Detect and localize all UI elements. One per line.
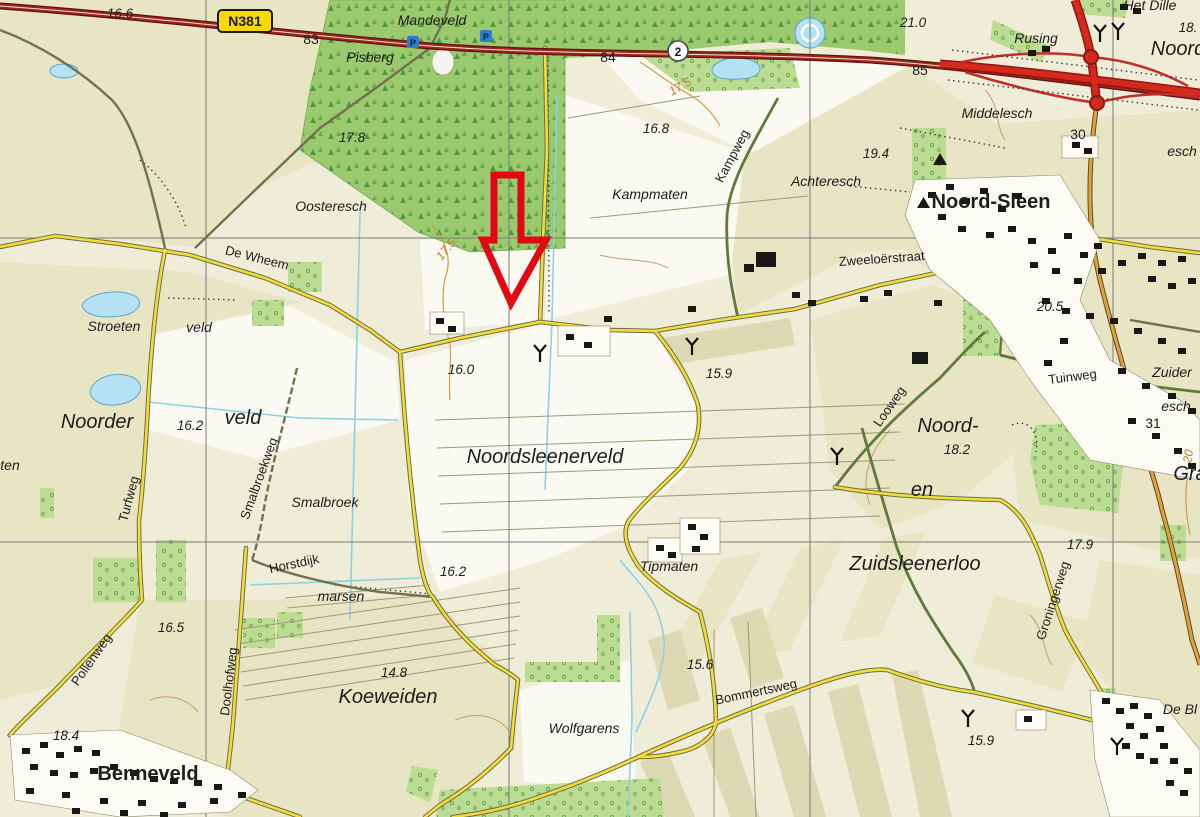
map-label: 31 <box>1145 415 1161 431</box>
field-layer <box>0 0 1200 817</box>
map-label: 85 <box>912 62 928 78</box>
building <box>1160 743 1168 749</box>
building <box>860 296 868 302</box>
map-label: Noord-Sleen <box>932 191 1051 213</box>
building <box>1060 338 1068 344</box>
map-label: en <box>911 479 933 501</box>
map-label: 15.6 <box>687 657 714 672</box>
map-label: 21.0 <box>899 15 927 30</box>
map-label: Rusing <box>1014 30 1058 46</box>
building <box>1008 226 1016 232</box>
building <box>1136 753 1144 759</box>
building <box>1170 758 1178 764</box>
building <box>92 750 100 756</box>
map-label: 16.5 <box>158 620 185 635</box>
building <box>1024 716 1032 722</box>
building <box>1156 726 1164 732</box>
building <box>1086 313 1094 319</box>
map-label: 20.5 <box>1036 299 1064 314</box>
map-label: ten <box>0 457 20 473</box>
map-canvas: N381 2 P P 16.683Mandeveld848517.521.0Ru… <box>0 0 1200 817</box>
building <box>1184 768 1192 774</box>
building <box>1158 338 1166 344</box>
building <box>1134 328 1142 334</box>
building <box>178 802 186 808</box>
svg-text:P: P <box>483 32 489 42</box>
building <box>448 326 456 332</box>
building <box>210 798 218 804</box>
building <box>1048 248 1056 254</box>
map-label: Wolfgarens <box>549 720 620 736</box>
building <box>50 770 58 776</box>
building <box>1130 703 1138 709</box>
map-label: veld <box>186 319 213 335</box>
map-label: 16.2 <box>440 564 467 579</box>
building <box>100 798 108 804</box>
building <box>1098 268 1106 274</box>
map-label: veld <box>225 407 263 429</box>
building <box>1128 418 1136 424</box>
building <box>1110 318 1118 324</box>
building <box>62 792 70 798</box>
building <box>436 318 444 324</box>
building <box>30 764 38 770</box>
building <box>26 788 34 794</box>
map-label: 30 <box>1070 126 1086 142</box>
building <box>1140 733 1148 739</box>
map-label: 83 <box>303 31 319 47</box>
building <box>1052 268 1060 274</box>
building <box>1138 253 1146 259</box>
map-label: Noord- <box>917 415 978 437</box>
pond <box>50 64 78 78</box>
building <box>584 342 592 348</box>
map-label: esch <box>1161 398 1191 414</box>
map-label: De Bl <box>1163 701 1198 717</box>
building <box>1080 252 1088 258</box>
building <box>912 352 928 364</box>
building <box>986 232 994 238</box>
parking-icon: P <box>480 30 492 42</box>
parking-icon: P <box>407 36 419 48</box>
building <box>160 812 168 817</box>
building <box>884 290 892 296</box>
building <box>1178 256 1186 262</box>
map-label: 16.0 <box>448 362 475 377</box>
building <box>1152 433 1160 439</box>
map-label: Zuider <box>1151 364 1193 380</box>
building <box>1122 743 1130 749</box>
map-label: 15.9 <box>968 733 995 748</box>
map-label: Koeweiden <box>339 686 438 708</box>
building <box>692 546 700 552</box>
building <box>958 226 966 232</box>
map-label: Tipmaten <box>640 558 698 574</box>
building <box>938 214 946 220</box>
building <box>120 810 128 816</box>
building <box>1084 148 1092 154</box>
map-label: 18.2 <box>944 442 971 457</box>
building <box>1126 723 1134 729</box>
map-label: 15.9 <box>706 366 733 381</box>
map-label: esch <box>1167 143 1197 159</box>
building <box>1072 142 1080 148</box>
n381-shield-label: N381 <box>228 13 262 29</box>
building <box>688 306 696 312</box>
building <box>1150 758 1158 764</box>
map-label: Oosteresch <box>295 198 367 214</box>
building <box>688 524 696 530</box>
building <box>56 752 64 758</box>
building <box>214 784 222 790</box>
building <box>238 792 246 798</box>
building <box>1042 46 1050 52</box>
building <box>138 800 146 806</box>
map-label: Kampmaten <box>612 186 688 202</box>
building <box>1168 283 1176 289</box>
map-label: Smalbroek <box>292 494 360 510</box>
building <box>1178 348 1186 354</box>
map-label: 19.4 <box>863 146 889 161</box>
svg-text:P: P <box>410 38 416 48</box>
map-label: 16.2 <box>177 418 204 433</box>
map-label: marsen <box>318 588 365 604</box>
map-label: Het Dille <box>1124 0 1177 13</box>
building <box>934 300 942 306</box>
building <box>1030 262 1038 268</box>
map-label: 16.6 <box>107 6 134 21</box>
building <box>1118 260 1126 266</box>
map-label: Pisberg <box>346 49 394 65</box>
building <box>756 252 776 267</box>
building <box>1166 780 1174 786</box>
building <box>792 292 800 298</box>
map-label: 84 <box>600 49 616 65</box>
building <box>1158 260 1166 266</box>
map-label: 18. <box>1179 20 1198 35</box>
building <box>40 742 48 748</box>
building <box>1116 708 1124 714</box>
map-label: Zuidsleenerloo <box>848 553 980 575</box>
building <box>1094 243 1102 249</box>
building <box>1102 698 1110 704</box>
building <box>1064 233 1072 239</box>
route-2-label: 2 <box>675 45 682 59</box>
building <box>604 316 612 322</box>
building <box>1028 50 1036 56</box>
building <box>566 334 574 340</box>
map-label: Achteresch <box>790 173 861 189</box>
building <box>656 545 664 551</box>
building <box>700 534 708 540</box>
building <box>1142 383 1150 389</box>
building <box>1118 368 1126 374</box>
map-label: Mandeveld <box>398 12 468 28</box>
building <box>1144 713 1152 719</box>
map-label: Noordsleenerveld <box>467 446 625 468</box>
building <box>70 772 78 778</box>
building <box>1188 278 1196 284</box>
map-label: 20 <box>1180 448 1196 465</box>
map-label: Benneveld <box>97 763 198 785</box>
building <box>1044 360 1052 366</box>
building <box>72 808 80 814</box>
map-label: 16.8 <box>643 121 670 136</box>
building <box>946 184 954 190</box>
building <box>1148 276 1156 282</box>
building <box>1074 278 1082 284</box>
map-label: 17.9 <box>1067 537 1094 552</box>
map-label: 14.8 <box>381 665 408 680</box>
building <box>1180 790 1188 796</box>
building <box>1028 238 1036 244</box>
lake-small <box>712 58 760 79</box>
map-label: 18.4 <box>53 728 79 743</box>
map-label: Stroeten <box>88 318 141 334</box>
building <box>744 264 754 272</box>
map-label: 17.8 <box>339 130 366 145</box>
building <box>74 746 82 752</box>
map-label: Noorder <box>61 411 135 433</box>
building <box>22 748 30 754</box>
map-label: Noord <box>1151 38 1200 60</box>
map-label: Middelesch <box>962 105 1033 121</box>
topographic-map: N381 2 P P 16.683Mandeveld848517.521.0Ru… <box>0 0 1200 817</box>
building <box>808 300 816 306</box>
building <box>1062 308 1070 314</box>
map-label: Gra <box>1173 463 1200 485</box>
